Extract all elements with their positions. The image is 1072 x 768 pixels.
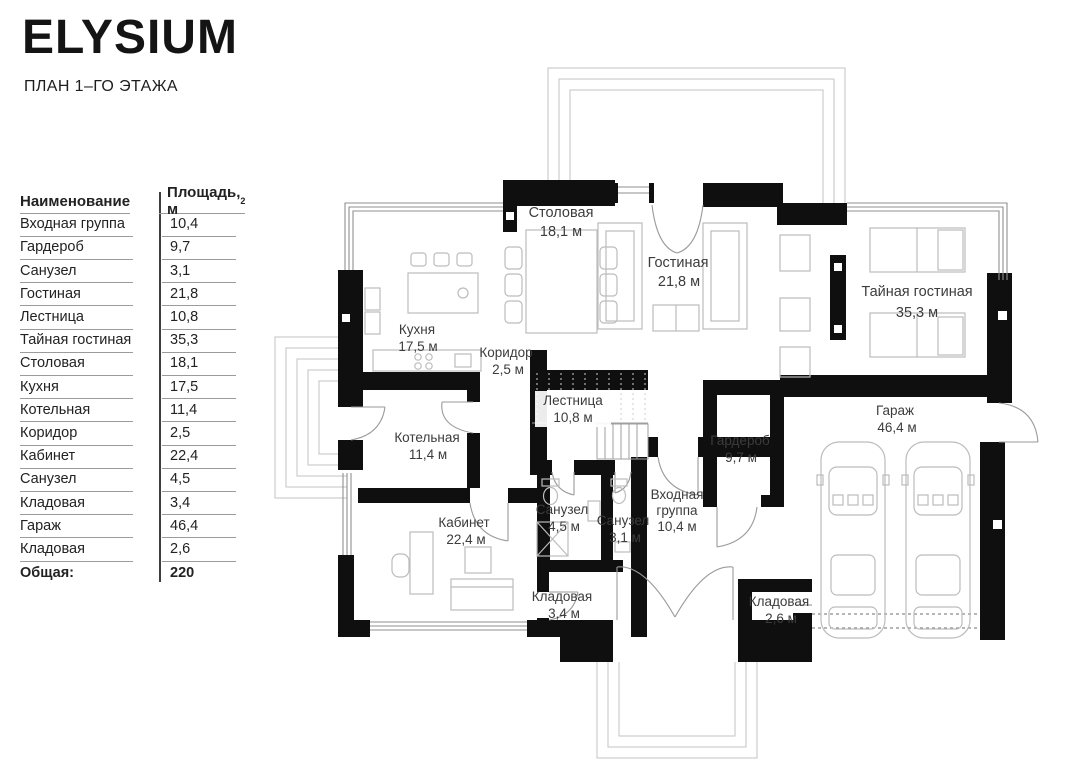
table-row: Кухня17,5 bbox=[20, 376, 236, 399]
room-label-sanuzel-45: Санузел bbox=[536, 502, 589, 517]
room-label-koridor: Коридор bbox=[479, 345, 532, 360]
room-area-kotelnaya: 11,4 м bbox=[409, 447, 447, 462]
room-label-lestnitsa: Лестница bbox=[543, 393, 603, 408]
room-label-kabinet: Кабинет bbox=[438, 515, 489, 530]
room-area-table: Наименование Площадь, м2 Входная группа1… bbox=[20, 190, 236, 584]
room-area-kladovaya-26: 2,6 м bbox=[765, 611, 797, 626]
table-row: Кабинет22,4 bbox=[20, 445, 236, 468]
room-label-kladovaya-34: Кладовая bbox=[532, 589, 592, 604]
room-area-sanuzel-45: 4,5 м bbox=[548, 519, 580, 534]
table-row: Гараж46,4 bbox=[20, 515, 236, 538]
floor-plan: Столовая 18,1 м Гостиная 21,8 м Тайная г… bbox=[265, 55, 1070, 765]
room-area-kabinet: 22,4 м bbox=[446, 532, 485, 547]
room-area-garderob: 9,7 м bbox=[725, 450, 757, 465]
table-row: Столовая18,1 bbox=[20, 352, 236, 375]
room-area-kladovaya-34: 3,4 м bbox=[548, 606, 580, 621]
table-row: Санузел4,5 bbox=[20, 468, 236, 491]
room-label-sanuzel-31: Санузел bbox=[597, 513, 650, 528]
page: { "header": { "brand": "ELYSIUM", "subti… bbox=[0, 0, 1072, 768]
table-total-row: Общая: 220 bbox=[20, 561, 236, 584]
brand-title: ELYSIUM bbox=[22, 10, 238, 65]
room-labels: Столовая 18,1 м Гостиная 21,8 м Тайная г… bbox=[394, 205, 972, 626]
room-label-kladovaya-26: Кладовая bbox=[749, 594, 809, 609]
room-label-garderob: Гардероб bbox=[710, 433, 770, 448]
table-header-row: Наименование Площадь, м2 bbox=[20, 190, 236, 213]
table-row: Гардероб9,7 bbox=[20, 236, 236, 259]
room-label-garazh: Гараж bbox=[876, 403, 914, 418]
plan-subtitle: ПЛАН 1–ГО ЭТАЖА bbox=[24, 78, 178, 96]
table-row: Тайная гостиная35,3 bbox=[20, 329, 236, 352]
room-area-taynaya-gostinaya: 35,3 м bbox=[896, 305, 938, 321]
car bbox=[817, 442, 889, 638]
room-area-kuhnya: 17,5 м bbox=[398, 339, 437, 354]
room-area-vhodnaya: 10,4 м bbox=[657, 519, 696, 534]
table-row: Гостиная21,8 bbox=[20, 283, 236, 306]
room-label-kotelnaya: Котельная bbox=[394, 430, 459, 445]
table-row: Лестница10,8 bbox=[20, 306, 236, 329]
room-label-kuhnya: Кухня bbox=[399, 322, 435, 337]
table-row: Коридор2,5 bbox=[20, 422, 236, 445]
col-header-name: Наименование bbox=[20, 190, 130, 214]
table-row: Котельная11,4 bbox=[20, 399, 236, 422]
media-unit bbox=[830, 255, 846, 340]
room-area-sanuzel-31: 3,1 м bbox=[609, 530, 641, 545]
table-row: Кладовая3,4 bbox=[20, 491, 236, 514]
room-area-stolovaya: 18,1 м bbox=[540, 224, 582, 240]
secret-living-furniture bbox=[780, 228, 965, 377]
table-row: Санузел3,1 bbox=[20, 260, 236, 283]
room-area-koridor: 2,5 м bbox=[492, 362, 524, 377]
room-label-stolovaya: Столовая bbox=[529, 205, 594, 221]
garage-gate bbox=[812, 614, 977, 628]
room-label-vhodnaya-1: Входная bbox=[651, 487, 704, 502]
room-label-gostinaya: Гостиная bbox=[648, 255, 709, 271]
room-label-taynaya-gostinaya: Тайная гостиная bbox=[861, 284, 972, 300]
car bbox=[902, 442, 974, 638]
room-area-garazh: 46,4 м bbox=[877, 420, 916, 435]
room-label-vhodnaya-2: группа bbox=[656, 503, 698, 518]
room-area-gostinaya: 21,8 м bbox=[658, 274, 700, 290]
table-row: Входная группа10,4 bbox=[20, 213, 236, 236]
col-header-area: Площадь, м2 bbox=[159, 190, 245, 214]
table-row: Кладовая2,6 bbox=[20, 538, 236, 561]
room-area-lestnitsa: 10,8 м bbox=[553, 410, 592, 425]
dining-furniture bbox=[505, 230, 617, 333]
